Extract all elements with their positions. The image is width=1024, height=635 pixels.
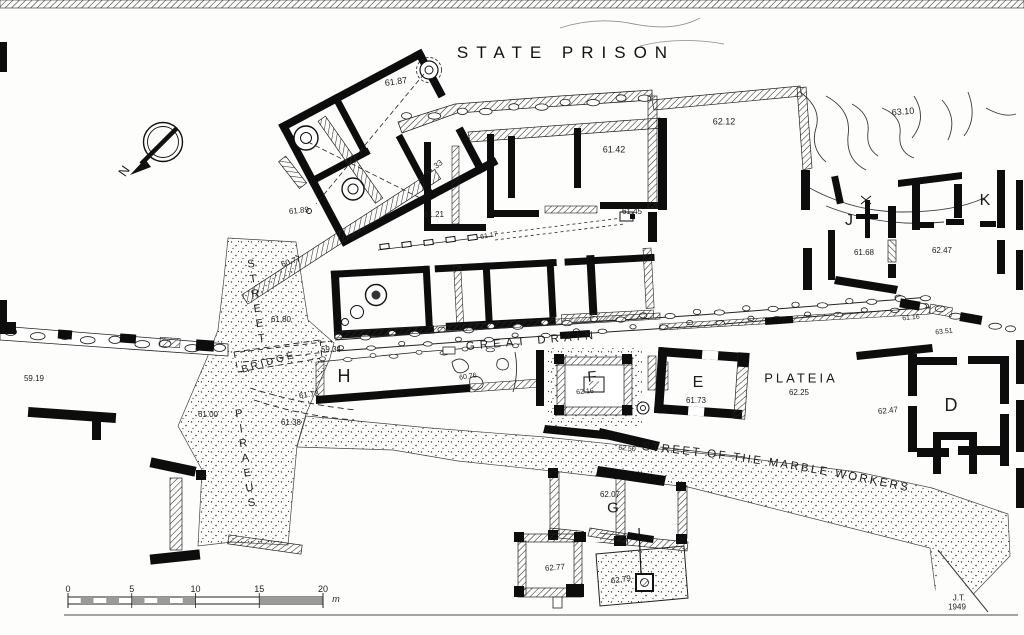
label-elev-61-42: 61.42 xyxy=(603,146,626,155)
prison-northwest-wing xyxy=(278,42,498,246)
label-room-e: E xyxy=(693,375,704,391)
label-elev-62-07: 62.07 xyxy=(600,491,620,499)
label-elev-59-19: 59.19 xyxy=(24,375,44,383)
state-prison-site-plan: STREET OF THE MARBLE WORKERS 61.8761.896… xyxy=(0,0,1024,635)
signature-year: 1949 xyxy=(948,603,966,612)
label-elev-62-12: 62.12 xyxy=(713,118,736,127)
label-elev-61-73-e: 61.73 xyxy=(686,397,706,405)
label-room-g: G xyxy=(607,501,619,516)
label-elev-61-00: 61.00 xyxy=(198,411,218,419)
label-elev-61-38: 61.38 xyxy=(281,419,301,427)
label-elev-62-47-k: 62.47 xyxy=(932,247,952,255)
signature-initials: J.T. xyxy=(953,594,965,603)
label-room-d: D xyxy=(945,396,958,414)
label-elev-62-25: 62.25 xyxy=(789,389,809,397)
west-boundary-wall xyxy=(0,322,228,356)
scale-unit: m xyxy=(332,594,340,604)
fountain-f xyxy=(543,348,668,440)
label-elev-61-80: 61.80 xyxy=(271,316,291,324)
label-elev-61-21: 61.21 xyxy=(424,211,444,219)
label-room-h: H xyxy=(338,367,351,385)
label-elev-61-68: 61.68 xyxy=(854,249,874,257)
label-room-j: J xyxy=(845,213,853,229)
north-arrow xyxy=(130,123,183,176)
terracotta-pipeline xyxy=(378,212,635,250)
label-plateia: PLATEIA xyxy=(764,372,838,385)
label-room-f: F xyxy=(587,369,597,385)
scale-tick-15: 15 xyxy=(254,584,264,594)
buildings-j-k xyxy=(828,170,1023,294)
scale-tick-0: 0 xyxy=(65,584,70,594)
site-plan-drawing: STREET OF THE MARBLE WORKERS xyxy=(0,0,1024,635)
scale-tick-20: 20 xyxy=(318,584,328,594)
label-elev-61-45: 61.45 xyxy=(622,208,642,216)
label-room-k: K xyxy=(980,193,991,209)
label-elev-59-34: 59.34 xyxy=(321,346,341,354)
map-title: STATE PRISON xyxy=(457,43,675,63)
building-d xyxy=(856,296,1024,508)
scale-tick-10: 10 xyxy=(190,584,200,594)
scale-bar xyxy=(68,593,323,608)
scale-tick-5: 5 xyxy=(129,584,134,594)
